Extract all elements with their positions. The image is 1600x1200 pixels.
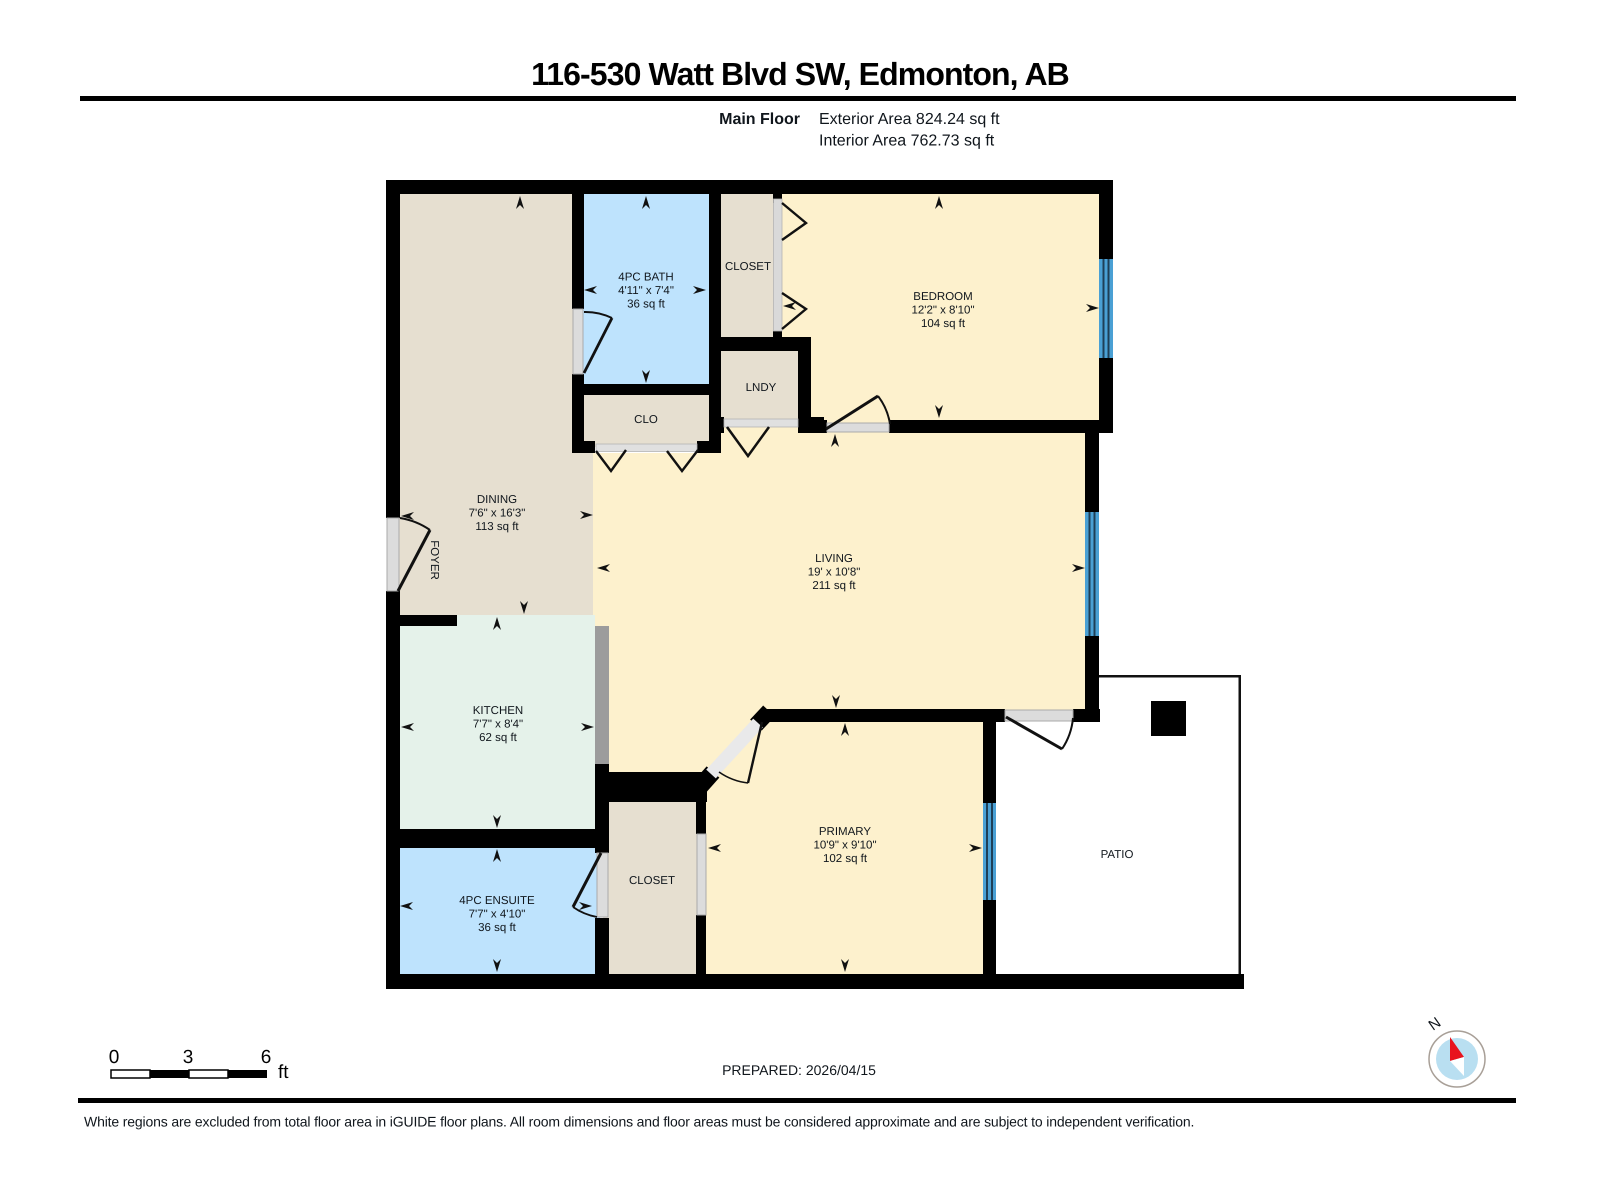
svg-text:Interior Area 762.73 sq ft: Interior Area 762.73 sq ft [819, 133, 995, 150]
svg-text:7'7" x 8'4": 7'7" x 8'4" [473, 719, 523, 731]
svg-text:12'2" x 8'10": 12'2" x 8'10" [911, 305, 974, 317]
svg-text:PATIO: PATIO [1101, 849, 1134, 861]
svg-text:CLO: CLO [634, 414, 658, 426]
svg-text:PRIMARY: PRIMARY [819, 826, 872, 838]
svg-text:36 sq ft: 36 sq ft [627, 299, 666, 311]
svg-text:102 sq ft: 102 sq ft [823, 853, 868, 865]
svg-text:Main Floor: Main Floor [719, 111, 800, 128]
svg-text:LIVING: LIVING [815, 553, 853, 565]
svg-text:PREPARED: 2026/04/15: PREPARED: 2026/04/15 [722, 1062, 876, 1078]
svg-text:4PC BATH: 4PC BATH [618, 272, 673, 284]
svg-text:CLOSET: CLOSET [725, 261, 771, 273]
svg-text:116-530 Watt Blvd SW, Edmonton: 116-530 Watt Blvd SW, Edmonton, AB [531, 56, 1069, 92]
svg-text:LNDY: LNDY [746, 382, 777, 394]
svg-text:4PC ENSUITE: 4PC ENSUITE [459, 895, 535, 907]
svg-text:0: 0 [109, 1047, 120, 1068]
svg-text:62 sq ft: 62 sq ft [479, 732, 518, 744]
svg-text:10'9" x 9'10": 10'9" x 9'10" [813, 840, 876, 852]
svg-text:3: 3 [183, 1047, 194, 1068]
svg-text:Exterior Area 824.24 sq ft: Exterior Area 824.24 sq ft [819, 111, 1000, 128]
svg-text:CLOSET: CLOSET [629, 875, 675, 887]
svg-text:36 sq ft: 36 sq ft [478, 922, 517, 934]
svg-text:ft: ft [278, 1062, 289, 1083]
svg-text:BEDROOM: BEDROOM [913, 291, 972, 303]
svg-text:113 sq ft: 113 sq ft [475, 521, 519, 533]
svg-text:7'6" x 16'3": 7'6" x 16'3" [469, 508, 526, 520]
svg-text:DINING: DINING [477, 494, 517, 506]
svg-text:FOYER: FOYER [428, 540, 440, 580]
svg-text:104 sq ft: 104 sq ft [921, 318, 966, 330]
svg-text:7'7" x 4'10": 7'7" x 4'10" [469, 909, 526, 921]
svg-text:White regions are excluded fro: White regions are excluded from total fl… [84, 1114, 1194, 1130]
svg-text:KITCHEN: KITCHEN [473, 705, 523, 717]
svg-text:4'11" x 7'4": 4'11" x 7'4" [618, 285, 674, 297]
svg-text:19' x 10'8": 19' x 10'8" [808, 567, 861, 579]
svg-text:6: 6 [261, 1047, 272, 1068]
svg-text:211 sq ft: 211 sq ft [812, 580, 856, 592]
